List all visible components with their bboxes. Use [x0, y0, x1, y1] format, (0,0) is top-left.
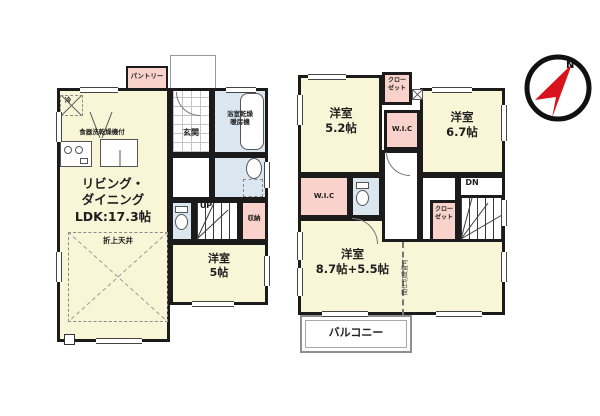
wic-top-label: W.I.C — [384, 125, 420, 134]
western-room-5-label: 洋室 5帖 — [190, 252, 248, 281]
closet-top-label: クロー ゼット — [382, 77, 412, 93]
stair-fan-lines — [458, 195, 505, 242]
stove-burner — [75, 146, 83, 154]
coffered-ceiling-label: 折上天井 — [93, 236, 143, 246]
entrance-porch-tiles — [170, 55, 216, 91]
window — [308, 74, 346, 80]
window — [80, 87, 118, 93]
window — [96, 338, 142, 344]
refrigerator-label: 冷 — [61, 96, 75, 104]
living-dining-label: リビング・ ダイニング LDK:17.3帖 — [58, 176, 168, 225]
compass-north-label: N — [566, 60, 574, 71]
window — [322, 311, 368, 317]
window — [264, 256, 270, 286]
window — [264, 162, 270, 188]
window — [432, 87, 472, 93]
window — [501, 252, 507, 282]
stove-burner — [64, 146, 72, 154]
toilet-tank-icon — [175, 206, 188, 213]
window — [501, 105, 507, 141]
window — [436, 311, 482, 317]
pantry-label: パントリー — [126, 72, 168, 80]
western-room-main-label: 洋室 8.7帖+5.5帖 — [300, 247, 405, 277]
kitchen-sink-mark — [112, 150, 128, 167]
stairs-down-label: DN — [461, 178, 483, 188]
window — [56, 252, 62, 282]
closet-bottom-label: クロー ゼット — [430, 206, 458, 222]
balcony-label: バルコニー — [300, 326, 412, 340]
dishwasher-label: 食器洗乾燥機付 — [56, 128, 148, 136]
exterior-meter-box — [64, 334, 75, 345]
hallway-1f — [170, 155, 212, 200]
bathroom-label: 浴室乾燥 暖房機 — [214, 110, 266, 127]
stairs-up-label: UP — [196, 201, 216, 211]
compass-rose: N — [522, 52, 594, 124]
washbasin-icon — [246, 158, 262, 179]
window — [297, 95, 303, 125]
window — [192, 301, 234, 307]
toilet-bowl-icon — [356, 190, 369, 206]
wic-left-label: W.I.C — [298, 192, 350, 201]
washing-machine-space — [243, 179, 263, 197]
window — [501, 200, 507, 226]
storage-label: 収納 — [240, 214, 268, 222]
western-room-67-label: 洋室 6.7帖 — [430, 110, 494, 140]
pipe-space-icon — [412, 89, 423, 100]
stove-grill — [80, 158, 88, 164]
entrance-label: 玄関 — [174, 128, 208, 138]
toilet-tank-icon — [356, 182, 369, 189]
window — [226, 87, 256, 93]
western-room-52-label: 洋室 5.2帖 — [312, 106, 370, 136]
window — [56, 112, 62, 142]
toilet-bowl-icon — [175, 214, 188, 230]
floor-plan-canvas: パントリー 冷 食器洗乾燥機付 — [0, 0, 600, 416]
